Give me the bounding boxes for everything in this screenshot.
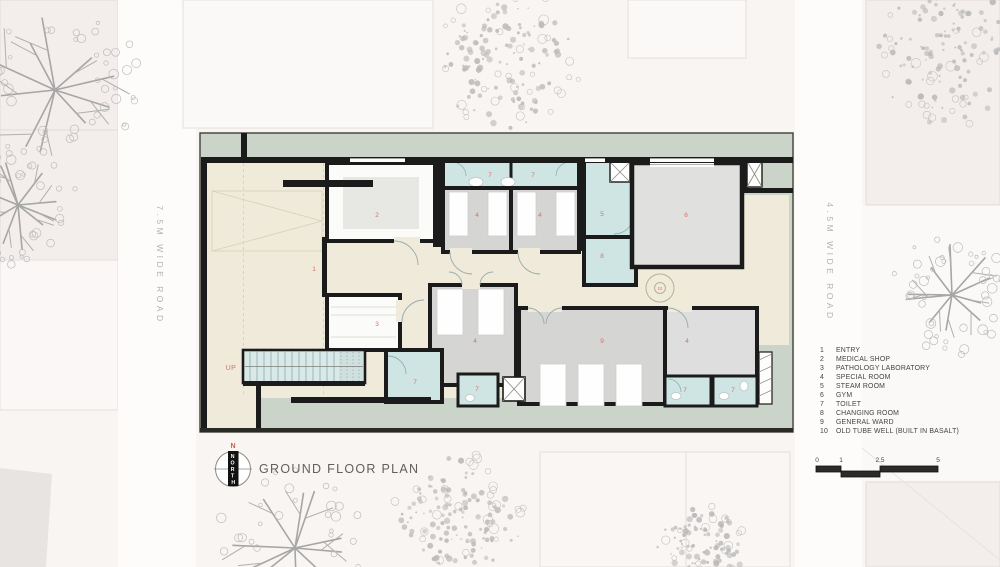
room-label-special-a: 4 [475,212,479,219]
room-toilet-br1 [665,376,711,406]
svg-text:2.5: 2.5 [875,457,884,464]
room-pathology-lab [327,295,400,350]
legend-item: 9GENERAL WARD [820,419,1000,428]
svg-text:1: 1 [839,457,843,464]
room-toilet-br2 [713,376,757,406]
room-label-general-ward: 9 [600,338,604,345]
stairs-up-label: UP [226,365,237,372]
room-special-d [665,308,757,378]
road-label-left: 7.5M WIDE ROAD [155,205,165,324]
page-title: GROUND FLOOR PLAN [259,462,419,476]
site-plan-drawing: 7.5M WIDE ROAD 4.5M WIDE ROAD [0,0,1000,567]
room-label-toilet-a: 7 [488,172,492,179]
room-changing [584,237,636,285]
room-label-entry: 1 [312,266,316,273]
room-label-gym: 6 [684,212,688,219]
legend-item: 6GYM [820,392,1000,401]
svg-text:0: 0 [815,457,819,464]
floor-plan: 1 2 3 4 4 5 6 7 7 8 9 4 4 7 7 7 7 10 UP [200,133,793,432]
room-label-toilet-br2: 7 [731,387,735,394]
north-n-label: N [230,443,235,450]
staircase [243,350,365,386]
room-label-changing-room: 8 [600,253,604,260]
room-label-toilet-b: 7 [531,172,535,179]
svg-text:5: 5 [936,457,940,464]
room-label-special-b: 4 [538,212,542,219]
room-label-toilet-large: 7 [413,379,417,386]
room-label-special-c: 4 [473,338,477,345]
north-arrow: N N O R T H [214,443,252,487]
room-label-tube-well: 10 [658,286,663,291]
legend-item: 8CHANGING ROOM [820,410,1000,419]
room-toilet-large [386,350,442,402]
legend-item: 2MEDICAL SHOP [820,356,1000,365]
legend-item: 1ENTRY [820,347,1000,356]
legend-item: 10OLD TUBE WELL (BUILT IN BASALT) [820,428,1000,437]
floor-plan-svg: 7.5M WIDE ROAD 4.5M WIDE ROAD [0,0,1000,567]
legend-item: 7TOILET [820,401,1000,410]
room-label-toilet-br1: 7 [683,387,687,394]
room-label-toilet-small: 7 [475,386,479,393]
legend-item: 3PATHOLOGY LABORATORY [820,365,1000,374]
legend-item: 4SPECIAL ROOM [820,374,1000,383]
road-label-right: 4.5M WIDE ROAD [825,202,835,321]
room-label-special-d: 4 [685,338,689,345]
legend-item: 5STEAM ROOM [820,383,1000,392]
tree-icon [443,0,581,130]
room-label-pathology-lab: 3 [375,321,379,328]
legend: 1ENTRY 2MEDICAL SHOP 3PATHOLOGY LABORATO… [820,347,1000,437]
room-toilet-b [511,159,579,190]
room-label-steam-room: 5 [600,211,604,218]
room-label-medical-shop: 2 [375,212,379,219]
